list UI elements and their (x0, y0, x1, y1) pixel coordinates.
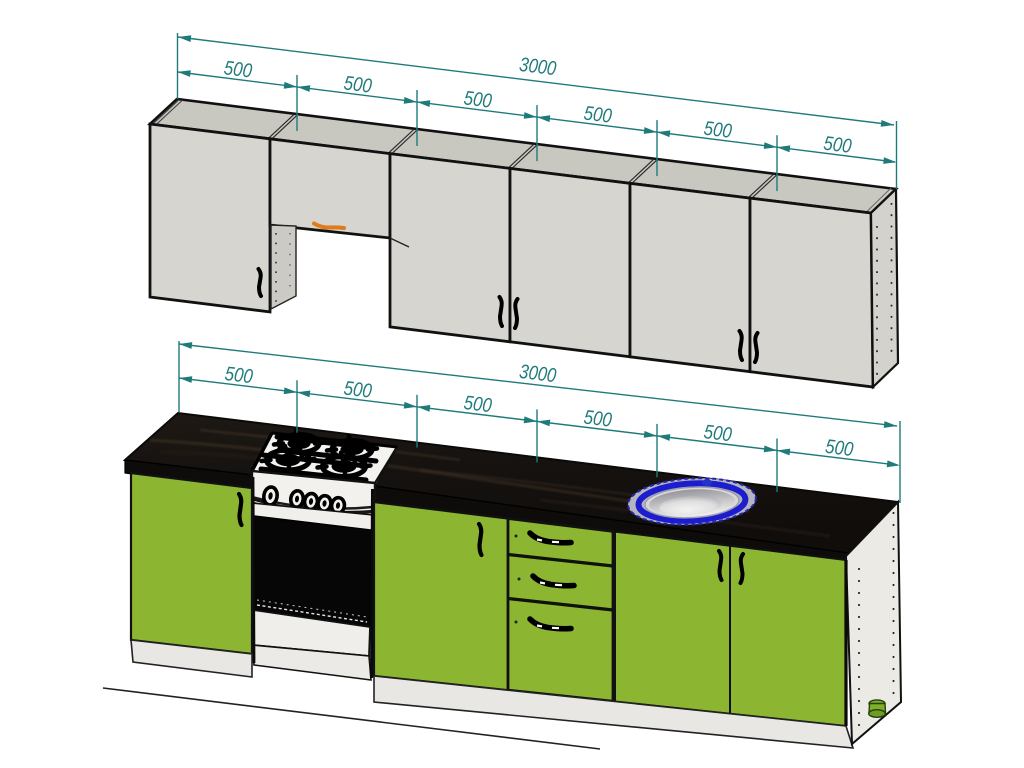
svg-text:500: 500 (342, 72, 373, 97)
svg-text:500: 500 (582, 406, 613, 431)
svg-text:500: 500 (223, 363, 254, 388)
svg-text:3000: 3000 (518, 54, 557, 80)
svg-text:500: 500 (342, 377, 373, 402)
svg-text:500: 500 (223, 57, 254, 82)
svg-text:500: 500 (462, 392, 493, 417)
svg-text:3000: 3000 (518, 361, 557, 387)
svg-text:500: 500 (824, 436, 855, 461)
svg-text:500: 500 (582, 102, 613, 127)
svg-text:500: 500 (702, 421, 733, 446)
svg-text:500: 500 (462, 87, 493, 112)
svg-text:500: 500 (822, 133, 853, 158)
svg-text:500: 500 (702, 118, 733, 143)
